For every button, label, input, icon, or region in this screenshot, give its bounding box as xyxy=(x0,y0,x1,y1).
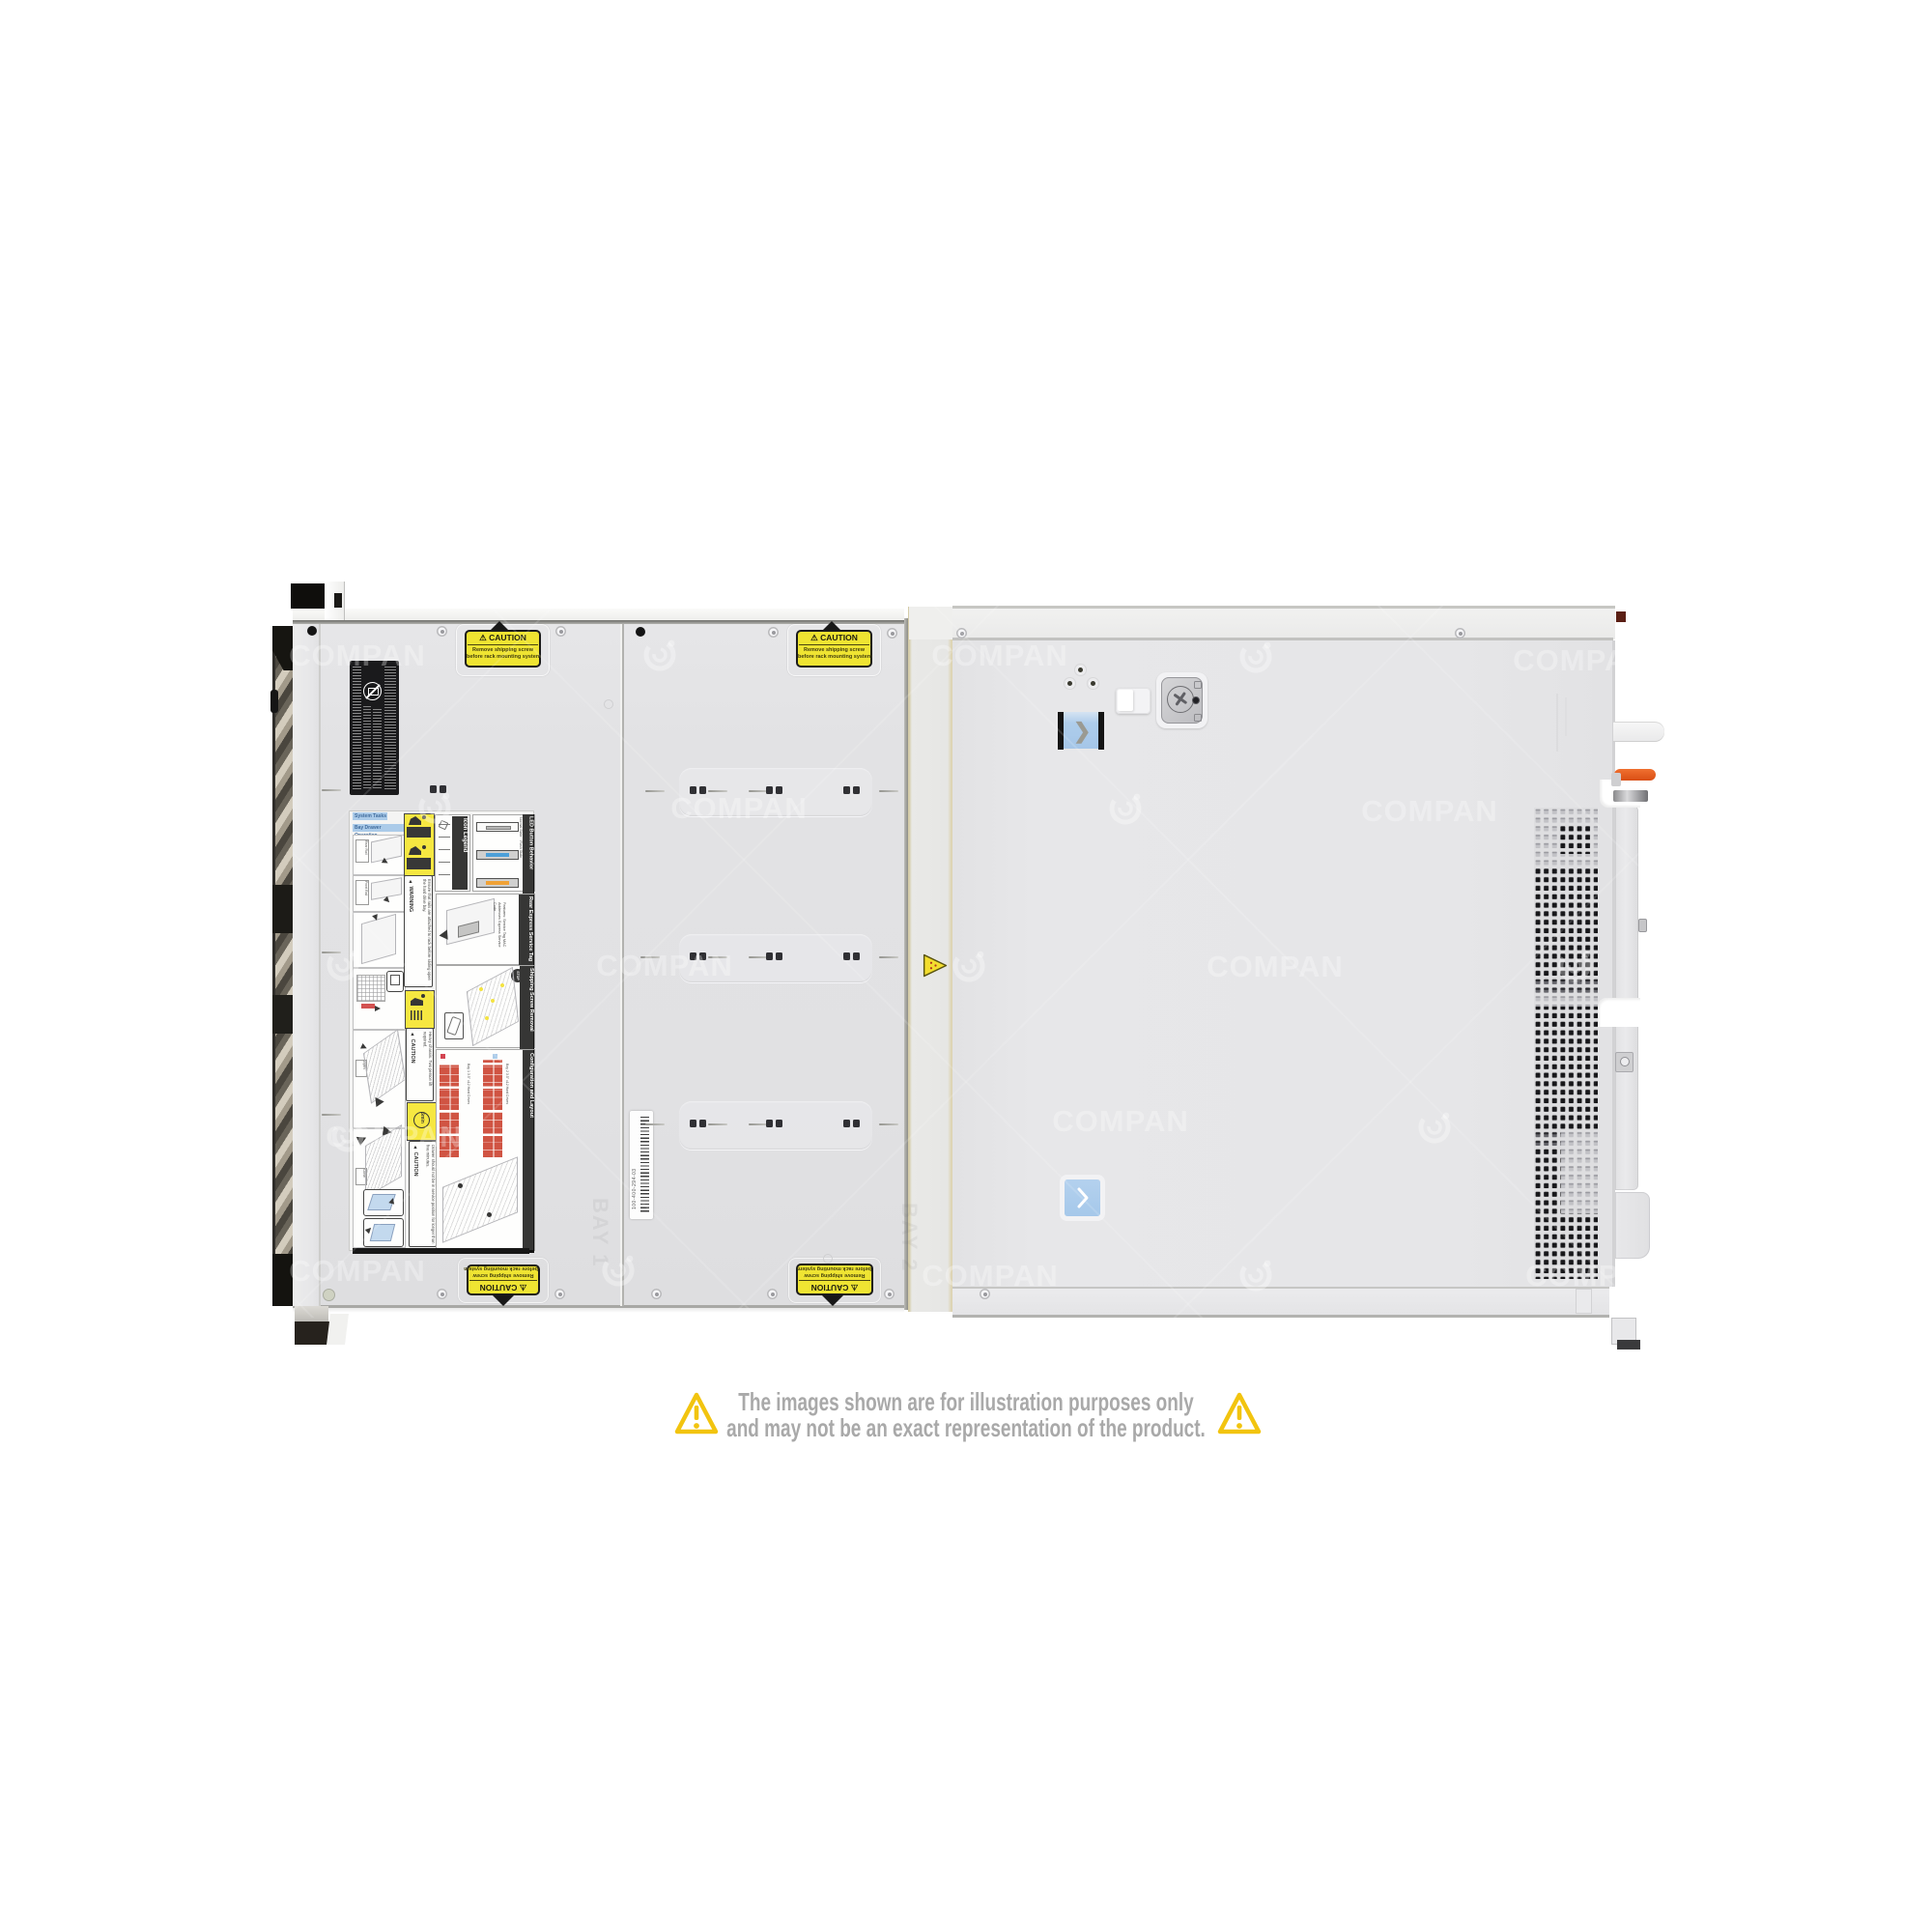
svg-text:COMPAN: COMPAN xyxy=(289,1254,425,1288)
svg-text:COMPAN: COMPAN xyxy=(1728,1109,1864,1143)
svg-text:COMPAN: COMPAN xyxy=(1361,794,1497,828)
svg-text:COMPAN: COMPAN xyxy=(1513,643,1649,677)
svg-text:COMPAN: COMPAN xyxy=(931,639,1067,672)
svg-text:COMPAN: COMPAN xyxy=(670,791,807,825)
svg-text:COMPAN: COMPAN xyxy=(922,1259,1058,1293)
svg-text:COMPAN: COMPAN xyxy=(289,639,425,672)
svg-text:COMPAN: COMPAN xyxy=(1525,1259,1662,1293)
svg-text:COMPAN: COMPAN xyxy=(1207,950,1343,983)
svg-text:COMPAN: COMPAN xyxy=(596,949,732,982)
svg-text:COMPAN: COMPAN xyxy=(1052,1104,1188,1138)
